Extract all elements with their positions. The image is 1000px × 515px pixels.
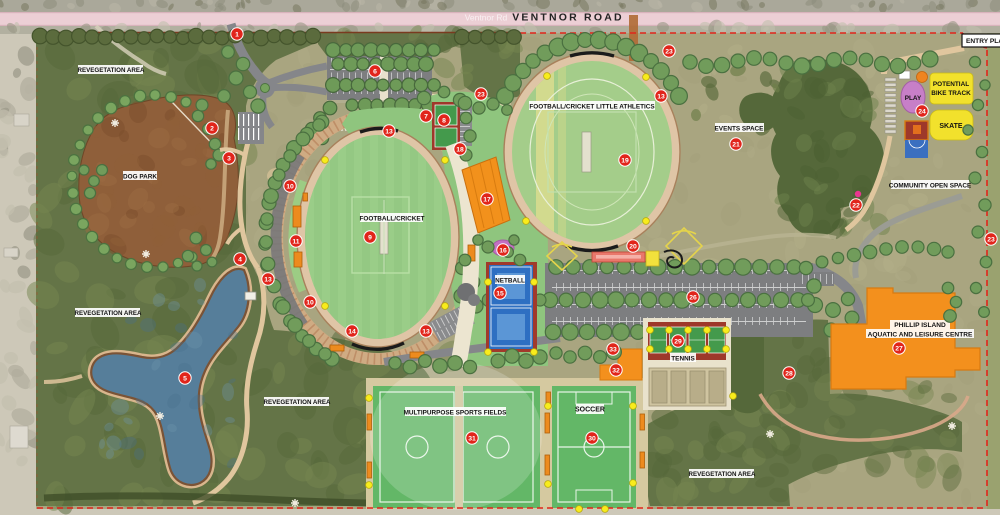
svg-text:REVEGETATION AREA: REVEGETATION AREA — [264, 399, 331, 406]
svg-text:7: 7 — [424, 113, 428, 120]
svg-text:2: 2 — [210, 125, 214, 132]
svg-text:VENTNOR ROAD: VENTNOR ROAD — [512, 12, 624, 24]
svg-text:4: 4 — [238, 256, 242, 263]
svg-text:23: 23 — [987, 236, 995, 243]
svg-text:COMMUNITY OPEN SPACE: COMMUNITY OPEN SPACE — [889, 182, 972, 189]
svg-text:21: 21 — [732, 141, 740, 148]
svg-text:16: 16 — [499, 247, 507, 254]
svg-text:REVEGETATION AREA: REVEGETATION AREA — [78, 67, 145, 74]
svg-text:10: 10 — [306, 299, 314, 306]
svg-text:30: 30 — [588, 435, 596, 442]
svg-text:20: 20 — [629, 243, 637, 250]
svg-text:28: 28 — [785, 370, 793, 377]
svg-text:1: 1 — [235, 31, 239, 38]
svg-text:AQUATIC AND LEISURE CENTRE: AQUATIC AND LEISURE CENTRE — [868, 332, 973, 339]
svg-text:REVEGETATION AREA: REVEGETATION AREA — [75, 310, 142, 317]
svg-text:FOOTBALL/CRICKET LITTLE ATHLET: FOOTBALL/CRICKET LITTLE ATHLETICS — [529, 103, 655, 110]
svg-text:26: 26 — [689, 294, 697, 301]
svg-text:ENTRY PLA: ENTRY PLA — [966, 38, 1000, 45]
svg-text:33: 33 — [609, 346, 617, 353]
svg-text:29: 29 — [674, 338, 682, 345]
svg-text:5: 5 — [183, 375, 187, 382]
svg-text:13: 13 — [264, 276, 272, 283]
svg-text:PHILLIP ISLAND: PHILLIP ISLAND — [894, 322, 946, 329]
svg-text:EVENTS SPACE: EVENTS SPACE — [715, 125, 765, 132]
svg-text:23: 23 — [477, 91, 485, 98]
svg-text:PLAY: PLAY — [905, 95, 922, 102]
svg-text:POTENTIAL: POTENTIAL — [933, 81, 969, 88]
svg-text:FOOTBALL/CRICKET: FOOTBALL/CRICKET — [360, 215, 425, 222]
svg-text:TENNIS: TENNIS — [671, 355, 695, 362]
svg-text:3: 3 — [227, 155, 231, 162]
svg-text:15: 15 — [496, 290, 504, 297]
svg-text:NETBALL: NETBALL — [495, 277, 525, 284]
svg-text:6: 6 — [373, 68, 377, 75]
svg-text:SKATE: SKATE — [939, 123, 963, 130]
svg-text:19: 19 — [621, 157, 629, 164]
svg-text:SOCCER: SOCCER — [575, 407, 605, 414]
svg-text:BIKE TRACK: BIKE TRACK — [931, 90, 971, 97]
svg-text:13: 13 — [422, 328, 430, 335]
svg-text:18: 18 — [456, 146, 464, 153]
svg-text:14: 14 — [348, 328, 356, 335]
svg-text:DOG PARK: DOG PARK — [123, 173, 157, 180]
svg-text:8: 8 — [442, 117, 446, 124]
svg-text:MULTIPURPOSE SPORTS FIELDS: MULTIPURPOSE SPORTS FIELDS — [404, 409, 508, 416]
svg-text:24: 24 — [918, 108, 926, 115]
svg-text:17: 17 — [483, 196, 491, 203]
svg-text:9: 9 — [368, 234, 372, 241]
svg-text:27: 27 — [895, 345, 903, 352]
svg-text:REVEGETATION AREA: REVEGETATION AREA — [689, 471, 756, 478]
svg-text:Ventnor Rd: Ventnor Rd — [465, 13, 508, 23]
svg-text:22: 22 — [852, 202, 860, 209]
svg-text:13: 13 — [385, 128, 393, 135]
svg-text:10: 10 — [286, 183, 294, 190]
svg-text:23: 23 — [665, 48, 673, 55]
svg-text:31: 31 — [468, 435, 476, 442]
svg-text:13: 13 — [657, 93, 665, 100]
svg-text:11: 11 — [292, 238, 299, 245]
svg-text:32: 32 — [612, 367, 620, 374]
